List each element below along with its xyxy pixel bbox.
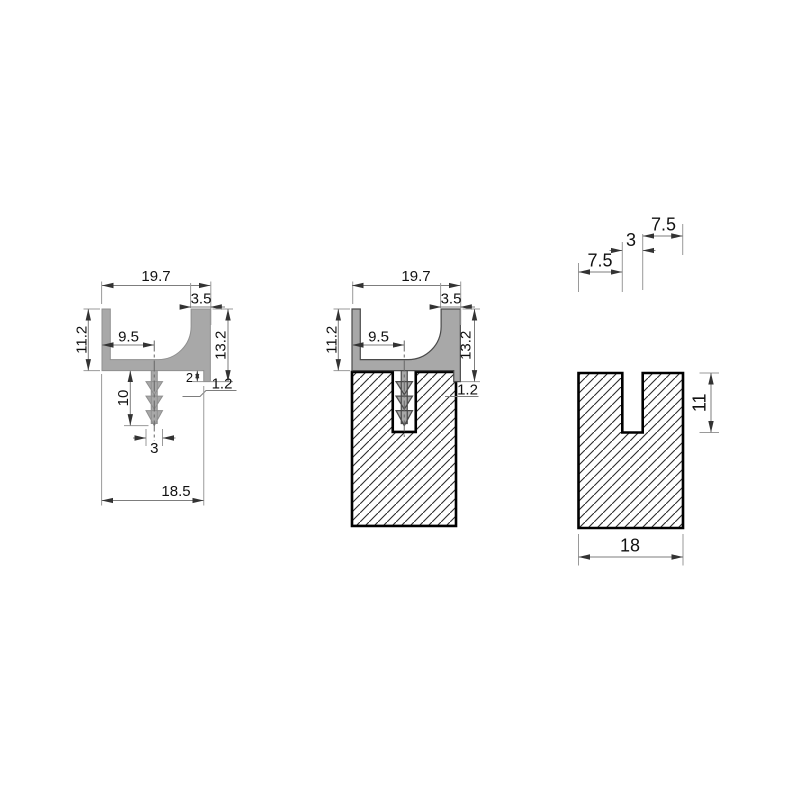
dim-label: 9.5 xyxy=(118,329,139,346)
dim-label: 2 xyxy=(186,370,193,385)
slotted-block-hatched xyxy=(579,373,684,528)
dim-label: 1.2 xyxy=(457,382,478,399)
dim-label: 3.5 xyxy=(191,291,212,308)
dim-slot-depth: 11 xyxy=(690,373,720,433)
middle-view-profile-in-block: 19.7 3.5 11.2 9.5 13.2 1.2 xyxy=(324,268,481,526)
dim-label: 3.5 xyxy=(441,291,462,308)
dim-label: 7.5 xyxy=(651,215,676,235)
dim-label: 1.2 xyxy=(212,376,233,393)
dim-label: 3 xyxy=(626,230,636,250)
dim-right-wall-width: 3.5 xyxy=(431,283,475,308)
dim-slot-width: 3 xyxy=(610,230,656,290)
dim-label: 18.5 xyxy=(161,483,190,500)
dim-label: 13.2 xyxy=(458,331,475,360)
dim-left-height: 11.2 xyxy=(324,309,351,371)
left-view-profile-section: 19.7 3.5 11.2 9.5 13.2 xyxy=(74,268,237,506)
dim-label: 18 xyxy=(620,536,640,556)
dim-label: 7.5 xyxy=(587,251,612,271)
technical-drawing-canvas: 19.7 3.5 11.2 9.5 13.2 xyxy=(0,0,800,800)
dim-spigot-width: 3 xyxy=(133,429,176,457)
drawing-svg: 19.7 3.5 11.2 9.5 13.2 xyxy=(0,0,800,800)
dim-label: 11.2 xyxy=(324,326,341,354)
dim-label: 11.2 xyxy=(74,326,91,354)
dim-top-right-segment: 7.5 xyxy=(643,215,683,256)
dim-spigot-length: 10 xyxy=(115,371,149,426)
dim-label: 10 xyxy=(115,390,132,407)
dim-right-height: 13.2 xyxy=(211,309,233,382)
dim-label: 19.7 xyxy=(401,268,430,285)
dim-left-height: 11.2 xyxy=(74,309,101,371)
dim-top-left-segment: 7.5 xyxy=(579,242,623,292)
dim-label: 11 xyxy=(690,393,710,412)
dim-bottom-width: 18 xyxy=(579,534,684,566)
dim-label: 19.7 xyxy=(141,268,170,285)
dim-right-wall-width: 3.5 xyxy=(181,283,225,308)
dim-step-height: 2 xyxy=(186,370,204,385)
dim-label: 9.5 xyxy=(368,329,389,346)
right-view-slotted-block: 7.5 3 7.5 11 18 xyxy=(579,215,720,566)
dim-label: 13.2 xyxy=(213,331,230,360)
dim-label: 3 xyxy=(150,440,158,457)
